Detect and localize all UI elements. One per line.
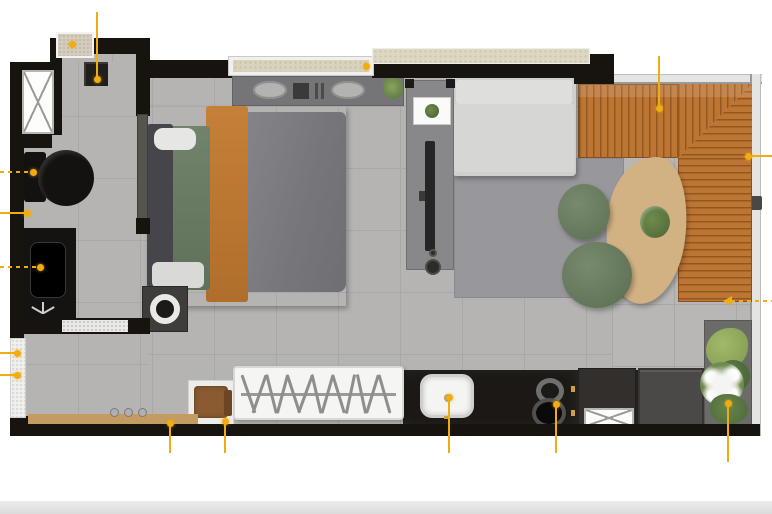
pouf-small bbox=[558, 184, 610, 240]
flower-ledge bbox=[372, 48, 590, 64]
hanger-icon bbox=[310, 374, 321, 414]
washer-drum bbox=[150, 294, 180, 324]
tray-plant bbox=[425, 104, 439, 118]
coffee-table-plant bbox=[640, 206, 670, 238]
tv bbox=[425, 141, 435, 251]
sofa bbox=[452, 76, 576, 176]
bed-duvet bbox=[244, 112, 346, 292]
refrigerator bbox=[638, 368, 704, 426]
sofa-back-cushion bbox=[456, 80, 572, 104]
wardrobe bbox=[233, 366, 404, 420]
shower-box bbox=[22, 70, 54, 134]
bed-orange-throw bbox=[206, 106, 248, 302]
cabinet-handle bbox=[571, 386, 575, 392]
wall-bottom-left-corner bbox=[10, 416, 28, 436]
hanger-icon bbox=[252, 375, 267, 414]
desk-chair bbox=[194, 386, 228, 418]
sofa-seat bbox=[454, 104, 574, 172]
bathroom-door-leaf bbox=[137, 114, 148, 222]
panel-speaker-large bbox=[425, 259, 441, 275]
kitchen-sink bbox=[420, 374, 474, 418]
deck-bench-right bbox=[678, 158, 752, 302]
vanity-faucet bbox=[43, 306, 54, 314]
entry-stool bbox=[84, 62, 108, 86]
wall-hook bbox=[138, 408, 147, 417]
bedroom-window bbox=[228, 56, 374, 76]
bed-white-pillow bbox=[154, 128, 196, 150]
pouf-large bbox=[562, 242, 632, 308]
cabinet-handle bbox=[571, 410, 575, 416]
headboard-shelf bbox=[232, 76, 404, 106]
hanger-icon bbox=[356, 374, 367, 414]
wall-hook bbox=[110, 408, 119, 417]
wall-shower-bottom bbox=[10, 132, 52, 148]
wall-hook bbox=[124, 408, 133, 417]
tv-mount bbox=[419, 191, 425, 201]
hanger-icon bbox=[366, 375, 380, 414]
wall-bath-stub bbox=[136, 218, 150, 234]
entry-door-panel bbox=[10, 338, 26, 418]
wall-shower-top bbox=[10, 62, 54, 70]
hanger-icon bbox=[297, 375, 313, 413]
window-curtain bbox=[233, 60, 369, 72]
wall-bottom bbox=[10, 424, 760, 436]
wall-main-top-left bbox=[148, 60, 232, 78]
entry-doormat bbox=[56, 32, 94, 58]
shelf-leaf-dish bbox=[331, 81, 365, 99]
shelf-books bbox=[321, 83, 324, 99]
cabinet-handle bbox=[444, 416, 450, 419]
hanger-icon bbox=[332, 375, 346, 414]
shelf-books bbox=[315, 83, 318, 99]
floor-plan bbox=[0, 0, 772, 514]
hanger-icon bbox=[345, 374, 356, 414]
shelf-plant bbox=[383, 77, 403, 99]
desk-chair-back bbox=[224, 390, 232, 416]
deck-highlight bbox=[578, 84, 752, 97]
shelf-box bbox=[293, 83, 309, 99]
panel-speaker-small bbox=[429, 249, 437, 257]
shelf-leaf-dish bbox=[253, 81, 287, 99]
bathroom-threshold bbox=[62, 320, 128, 332]
panel-bracket bbox=[446, 79, 455, 88]
sink-drain bbox=[444, 394, 452, 402]
panel-bracket bbox=[405, 79, 414, 88]
bed-sheet-corner bbox=[152, 262, 204, 288]
wardrobe-hangers bbox=[235, 368, 402, 418]
planter-plant-bottom bbox=[710, 394, 748, 424]
toilet-bowl bbox=[38, 150, 94, 206]
tv-plant-tray bbox=[413, 97, 451, 125]
vanity-sink bbox=[30, 242, 66, 298]
tv-panel bbox=[406, 80, 454, 270]
page-bottom-strip bbox=[0, 501, 772, 514]
hanger-icon bbox=[265, 374, 277, 413]
vanity-faucet bbox=[31, 306, 42, 314]
bathroom-vanity bbox=[22, 228, 76, 320]
hanger-icon bbox=[377, 374, 390, 413]
